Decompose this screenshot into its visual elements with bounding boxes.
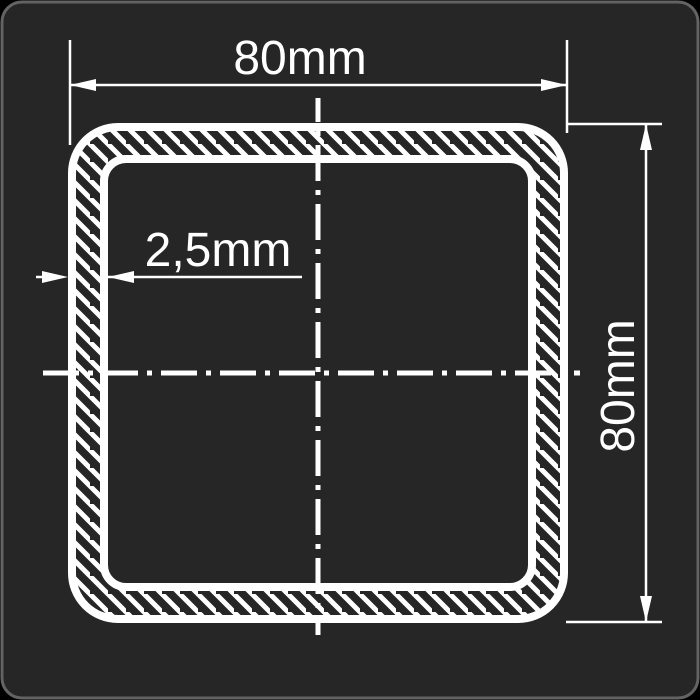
wall-thickness-label: 2,5mm (145, 224, 292, 277)
width-dimension-label: 80mm (233, 32, 366, 85)
tube-cross-section-drawing: 80mm 80mm 2,5mm (0, 0, 700, 700)
height-dimension-label: 80mm (592, 319, 645, 452)
technical-drawing-stage: 80mm 80mm 2,5mm (0, 0, 700, 700)
